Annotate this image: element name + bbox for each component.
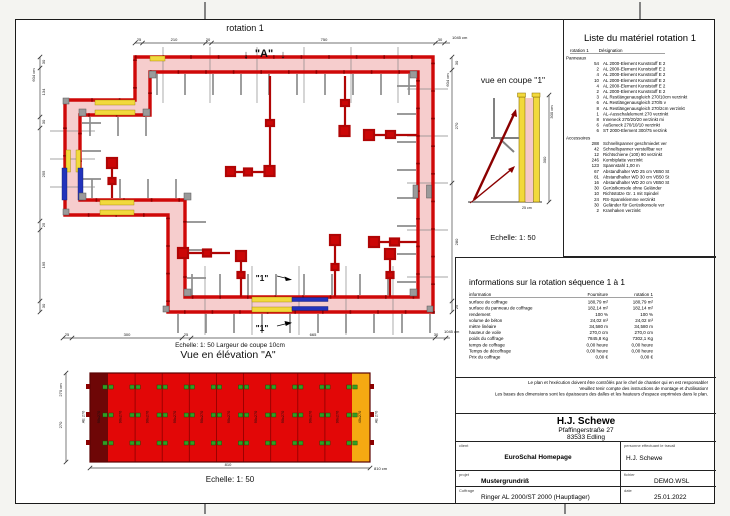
section-walkway-right [532, 93, 540, 97]
rotation-info-panel: informations sur la rotation séquence 1 … [455, 257, 716, 377]
item-qty: 6 [564, 128, 599, 134]
formwork-cell: Coffrage Ringer AL 2000/ST 2000 (Hauptla… [456, 487, 621, 504]
client-label: client [459, 443, 468, 448]
clamp-icon [238, 385, 242, 389]
floor-plan: "1" "1" ↓ "A" ↓ rotation 1 [50, 23, 448, 335]
section-dim: 300 [542, 156, 547, 163]
clamp-icon [217, 385, 221, 389]
title-block: H.J. Schewe Pfaffingerstraße 27 83533 Ed… [455, 413, 716, 504]
clamp-icon [190, 413, 194, 417]
list-item: 2 Kranhaken verzinkt [564, 208, 716, 214]
svg-text:750: 750 [321, 37, 328, 42]
clamp-icon [299, 441, 303, 445]
clamp-icon [109, 385, 113, 389]
clamp-icon [136, 441, 140, 445]
info-label: Prix du coffrage [469, 354, 555, 360]
file-value: DEMO.WSL [654, 478, 689, 485]
clamp-icon [266, 385, 270, 389]
clamp-icon [136, 413, 140, 417]
materials-list: Liste du matériel rotation 1 rotation 1 … [563, 19, 716, 257]
section-base-dim: 25 cm [522, 206, 532, 210]
clamp-icon [103, 413, 107, 417]
drawing-sheet-stage: "1" "1" ↓ "A" ↓ rotation 1 [0, 0, 730, 516]
clamp-icon [238, 413, 242, 417]
clamp-icon [211, 413, 215, 417]
info-title: informations sur la rotation séquence 1 … [469, 278, 716, 288]
project-value: Mustergrundriß [481, 478, 529, 485]
section-title: vue en coupe "1" [481, 75, 545, 85]
clamp-icon [157, 385, 161, 389]
materials-col-qty: rotation 1 [570, 48, 589, 53]
cut-marker-2-label: "1" [256, 323, 269, 333]
svg-text:90x270: 90x270 [200, 411, 204, 423]
clamp-icon [353, 441, 357, 445]
elevation-view: Echelle: 1: 50 Largeur de coupe 10cm Vue… [58, 342, 388, 484]
dimension-labels: 25 210 20 750 30 1045 cm 25 300 25 665 3… [31, 35, 468, 337]
svg-text:90x270: 90x270 [281, 411, 285, 423]
svg-text:25: 25 [184, 332, 189, 337]
clamp-icon [163, 385, 167, 389]
company-header: H.J. Schewe Pfaffingerstraße 27 83533 Ed… [456, 414, 716, 442]
info-rows: surface de coffrage 180,79 m² 180,79 m² … [469, 299, 716, 360]
svg-text:25: 25 [65, 332, 70, 337]
svg-text:40x270: 40x270 [358, 411, 362, 423]
clamp-icon [347, 385, 351, 389]
clamp-icon [130, 385, 134, 389]
section-dim-total: 300 cm [549, 105, 554, 119]
svg-text:210: 210 [171, 37, 178, 42]
clamp-icon [136, 385, 140, 389]
clamp-icon [293, 413, 297, 417]
elevation-dim-bottom: 810 [225, 462, 232, 467]
clamp-icon [163, 413, 167, 417]
svg-text:20: 20 [206, 37, 211, 42]
section-concrete [526, 98, 534, 202]
clamp-icon [157, 441, 161, 445]
company-address1: Pfaffingerstraße 27 [456, 427, 716, 434]
item-designation: ST 2000-Element 300/75 verzink [603, 128, 667, 134]
svg-text:25: 25 [137, 37, 142, 42]
formwork-label: Coffrage [459, 488, 474, 493]
svg-text:90x270: 90x270 [119, 411, 123, 423]
info-col-label: information [469, 292, 555, 298]
project-label: projet [459, 472, 469, 477]
svg-text:30: 30 [454, 60, 459, 65]
svg-text:90x270: 90x270 [227, 411, 231, 423]
materials-group-accessories: Accessoires [566, 135, 716, 140]
file-cell: fichier DEMO.WSL [621, 471, 716, 486]
file-label: fichier [624, 472, 635, 477]
company-name: H.J. Schewe [456, 416, 716, 427]
clamp-icon [266, 413, 270, 417]
blue-elements [62, 168, 328, 311]
svg-text:30: 30 [41, 303, 46, 308]
info-col-fourniture: Fourniture [555, 292, 608, 298]
clamp-icon [211, 441, 215, 445]
section-walkway-left [518, 93, 526, 97]
svg-text:90x270: 90x270 [97, 411, 101, 423]
clamp-icon [272, 441, 276, 445]
svg-text:30: 30 [41, 119, 46, 124]
arrow-down-icon: ↓ [280, 49, 286, 61]
item-designation: Kranhaken verzinkt [603, 208, 641, 214]
clamp-icon [244, 441, 248, 445]
clamp-icon [266, 441, 270, 445]
clamp-icon [184, 413, 188, 417]
clamp-icon [353, 385, 357, 389]
materials-title: Liste du matériel rotation 1 [564, 33, 716, 44]
elevation-dim-left: 270 [58, 421, 63, 428]
svg-text:280: 280 [454, 238, 459, 245]
clamp-icon [272, 385, 276, 389]
clamp-icon [347, 413, 351, 417]
clamp-icon [109, 413, 113, 417]
clamp-icon [293, 385, 297, 389]
materials-panels-rows: 54 AL 2000-Element Kunststoff E 2 2 AL 2… [564, 61, 716, 134]
svg-text:255: 255 [41, 170, 46, 177]
clamp-icon [293, 441, 297, 445]
table-row: Prix du coffrage 0,00 € 0,00 € [469, 354, 716, 360]
clamp-icon [103, 385, 107, 389]
clamp-icon [190, 441, 194, 445]
materials-header: rotation 1 Désignation [570, 48, 665, 54]
clamp-icon [184, 441, 188, 445]
elevation-dim-left-total: 270 cm [58, 383, 63, 397]
info-fourniture-value: 0,00 € [555, 354, 608, 360]
worker-value: H.J. Schewe [626, 455, 663, 462]
brace-symbols [107, 76, 417, 297]
disclaimer-box: Le plan et l'exécution doivent être cont… [455, 377, 716, 413]
list-item: 6 ST 2000-Element 300/75 verzink [564, 128, 716, 134]
marker-a-label: "A" [255, 48, 273, 60]
clamp-icon [238, 441, 242, 445]
client-cell: client EuroSchal Homepage [456, 442, 621, 470]
item-qty: 2 [564, 208, 599, 214]
svg-text:665: 665 [310, 332, 317, 337]
svg-text:90x270: 90x270 [335, 411, 339, 423]
cut-marker-1-label: "1" [256, 273, 269, 283]
worker-label: personne effectuant le travail [624, 443, 675, 448]
clamp-icon [299, 413, 303, 417]
clamp-icon [326, 413, 330, 417]
svg-text:25: 25 [41, 222, 46, 227]
materials-accessories-rows: 288 Schnellspanner geschmiedet ver 42 Sc… [564, 141, 716, 214]
svg-text:300: 300 [124, 332, 131, 337]
company-address2: 83533 Edling [456, 434, 716, 441]
clamp-icon [163, 441, 167, 445]
section-form-panel-right [534, 97, 540, 202]
svg-text:604 cm: 604 cm [445, 73, 450, 87]
date-cell: date 25.01.2022 [621, 487, 716, 504]
svg-text:30: 30 [434, 332, 439, 337]
clamp-icon [320, 413, 324, 417]
info-rotation-value: 0,00 € [608, 354, 653, 360]
clamp-icon [217, 413, 221, 417]
clamp-icon [320, 385, 324, 389]
clamp-icon [103, 441, 107, 445]
clamp-icon [272, 413, 276, 417]
section-scale: Echelle: 1: 50 [490, 233, 535, 242]
clamp-icon [217, 441, 221, 445]
svg-text:604 cm: 604 cm [31, 68, 36, 82]
svg-text:90x270: 90x270 [254, 411, 258, 423]
clamp-icon [347, 441, 351, 445]
svg-text:90x270: 90x270 [173, 411, 177, 423]
svg-text:90x270: 90x270 [308, 411, 312, 423]
disclaimer-line: Les bases des dimensions sont les épaiss… [456, 392, 708, 398]
info-col-rotation: rotation 1 [608, 292, 653, 298]
svg-text:134: 134 [41, 88, 46, 95]
scaffold-bracket [491, 98, 519, 152]
clamp-icon [244, 385, 248, 389]
clamp-icon [184, 385, 188, 389]
date-value: 25.01.2022 [654, 494, 687, 501]
clamp-icon [299, 385, 303, 389]
clamp-icon [326, 441, 330, 445]
plan-title: rotation 1 [226, 23, 264, 33]
info-header: information Fourniture rotation 1 [469, 292, 653, 299]
materials-group-panels: Panneaux [566, 56, 716, 61]
elevation-scale: Echelle: 1: 50 [206, 475, 255, 484]
client-value: EuroSchal Homepage [456, 454, 620, 461]
clamp-icon [130, 441, 134, 445]
worker-cell: personne effectuant le travail H.J. Sche… [621, 442, 716, 470]
elevation-dim-bottom-total: 810 cm [374, 466, 388, 471]
clamp-icon [320, 441, 324, 445]
section-view: vue en coupe "1" 25 cm 300 cm 300 [468, 75, 554, 242]
svg-text:195: 195 [41, 261, 46, 268]
clamp-icon [326, 385, 330, 389]
svg-text:30: 30 [41, 59, 46, 64]
clamp-icon [211, 385, 215, 389]
project-cell: projet Mustergrundriß [456, 471, 621, 486]
materials-col-designation: Désignation [599, 48, 623, 53]
clamp-icon [244, 413, 248, 417]
clamp-icon [353, 413, 357, 417]
elevation-right-label: AE 270 [375, 411, 379, 423]
arrow-down-icon: ↓ [243, 49, 249, 61]
svg-text:90x270: 90x270 [146, 411, 150, 423]
clamp-icon [130, 413, 134, 417]
elevation-left-label: AE 270 [82, 411, 86, 423]
clamp-icon [190, 385, 194, 389]
clamp-icon [157, 413, 161, 417]
svg-text:1045 cm: 1045 cm [452, 35, 468, 40]
clamp-icon [109, 441, 113, 445]
date-label: date [624, 488, 632, 493]
elevation-pretitle: Echelle: 1: 50 Largeur de coupe 10cm [175, 342, 285, 349]
svg-text:30: 30 [438, 37, 443, 42]
formwork-value: Ringer AL 2000/ST 2000 (Hauptlager) [481, 494, 590, 501]
svg-text:270: 270 [454, 122, 459, 129]
section-form-panel-left [519, 97, 525, 202]
elevation-title: Vue en élévation "A" [180, 349, 275, 361]
